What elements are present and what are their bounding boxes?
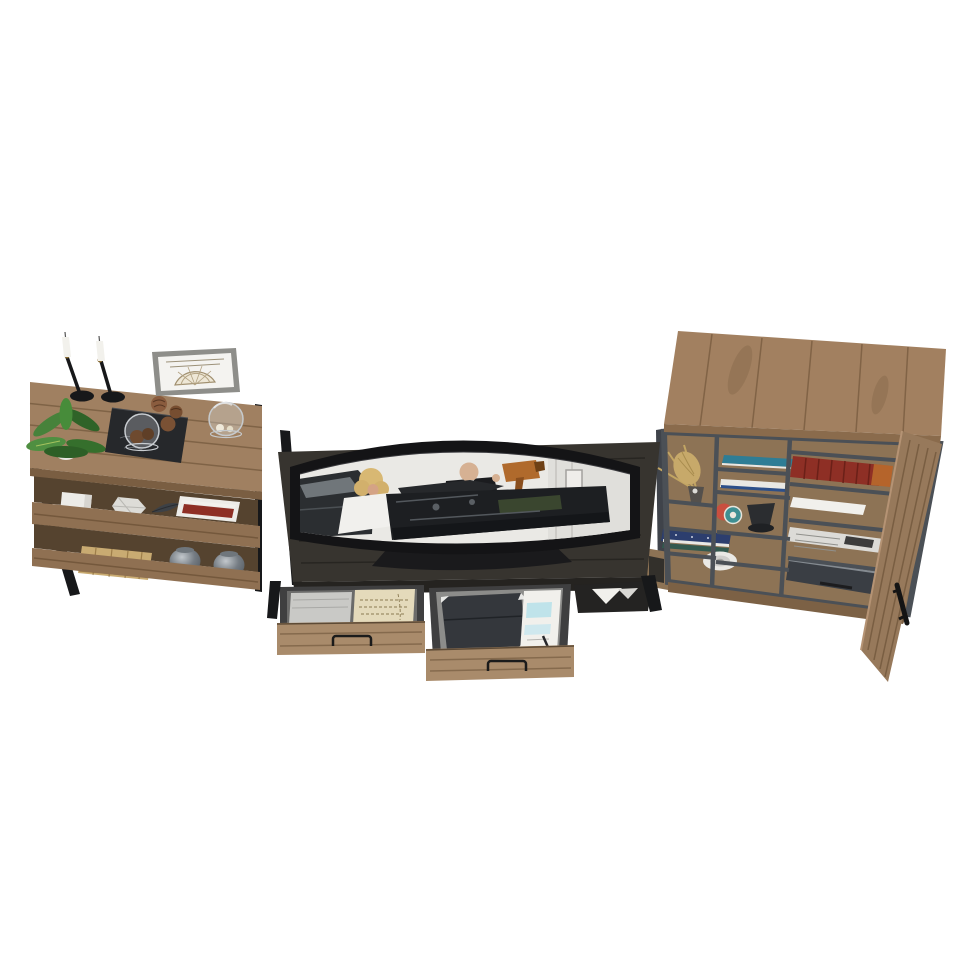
framed-print bbox=[152, 348, 240, 396]
glass-cloche bbox=[209, 403, 243, 438]
tvstand-leg-left bbox=[267, 581, 281, 619]
pinecone-on-tray bbox=[161, 417, 176, 432]
candle bbox=[96, 341, 105, 361]
drawer-front bbox=[426, 645, 574, 681]
right-cabinet bbox=[645, 331, 946, 682]
orange-book bbox=[871, 464, 893, 487]
pinecone-in-dome bbox=[130, 430, 144, 444]
drawer-left bbox=[277, 585, 425, 655]
candle bbox=[62, 337, 71, 357]
drawer-front bbox=[277, 621, 425, 655]
black-funnel bbox=[747, 503, 775, 533]
printed-papers bbox=[520, 590, 561, 654]
product-photo-canvas bbox=[0, 0, 970, 970]
left-console bbox=[25, 332, 262, 596]
drawer-right bbox=[426, 584, 574, 681]
product-render bbox=[0, 0, 970, 970]
dark-folder bbox=[441, 593, 526, 650]
side-cubby bbox=[574, 581, 652, 613]
